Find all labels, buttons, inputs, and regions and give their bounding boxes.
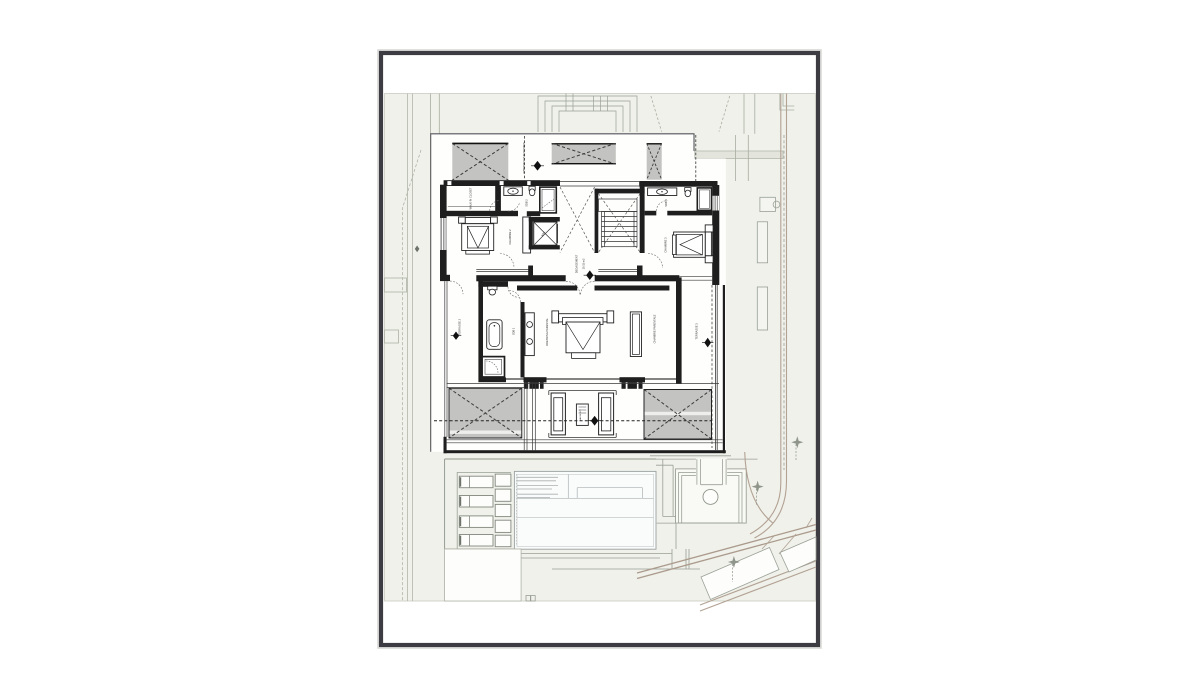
- svg-text:CHAMBRE 3: CHAMBRE 3: [664, 237, 668, 253]
- svg-text:TERRASSE 2: TERRASSE 2: [458, 318, 462, 335]
- svg-text:SDB 2: SDB 2: [525, 199, 529, 207]
- svg-text:SALON EXT: SALON EXT: [579, 409, 582, 421]
- svg-text:DEGAGEMENT: DEGAGEMENT: [575, 254, 579, 273]
- svg-text:WALK-IN CLOSET: WALK-IN CLOSET: [469, 187, 473, 209]
- svg-text:SDB 3: SDB 3: [664, 199, 668, 207]
- svg-text:CHAMBRE 2: CHAMBRE 2: [508, 229, 512, 245]
- svg-text:DRESSING PARENTAL: DRESSING PARENTAL: [545, 318, 549, 346]
- svg-text:TERRASSE NON ACCESSIBLE: TERRASSE NON ACCESSIBLE: [523, 142, 526, 174]
- svg-text:TERRASSE 3: TERRASSE 3: [695, 323, 699, 340]
- svg-text:CHAMBRE PARENTALE: CHAMBRE PARENTALE: [652, 314, 656, 343]
- svg-text:SDB 1: SDB 1: [512, 327, 516, 335]
- svg-text:10.15 m2: 10.15 m2: [582, 258, 586, 269]
